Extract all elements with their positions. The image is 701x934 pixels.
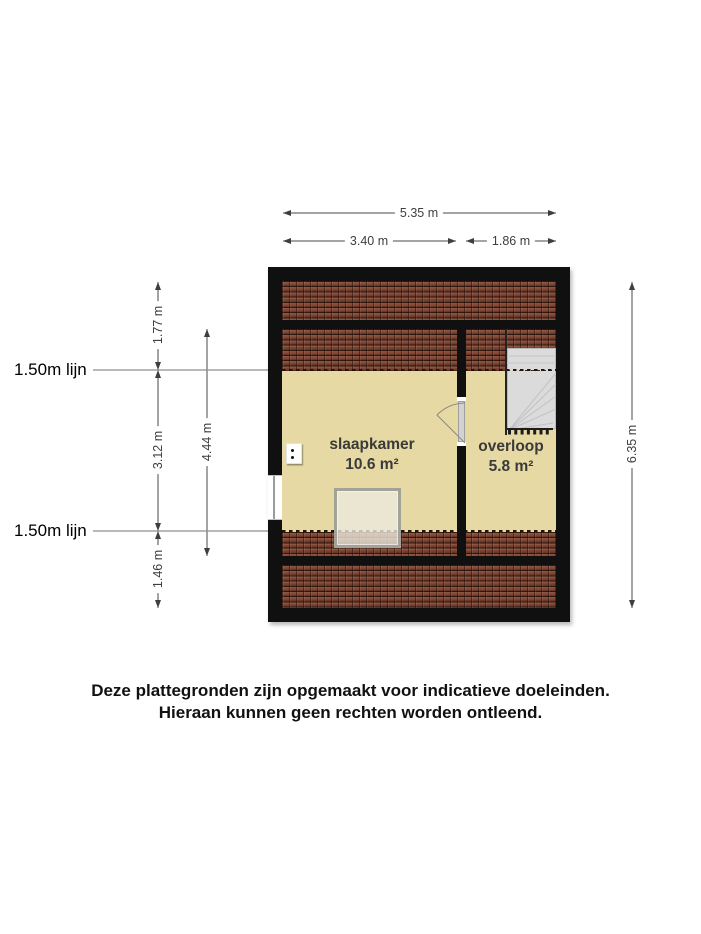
room-area: 5.8 m² <box>478 457 543 477</box>
knee-wall-dashed-line-top <box>282 369 556 371</box>
roof-tile-band-top <box>282 281 556 320</box>
height-line-label-top: 1.50m lijn <box>14 360 87 380</box>
height-line-label-bottom: 1.50m lijn <box>14 521 87 541</box>
dim-label-overall-width: 5.35 m <box>395 206 443 220</box>
disclaimer-line-2: Hieraan kunnen geen rechten worden ontle… <box>0 702 701 724</box>
roof-tile-band-bottom <box>282 565 556 608</box>
room-name: overloop <box>478 437 543 457</box>
floorplan-page: 5.35 m 3.40 m 1.86 m 1.77 m 3.12 m 1.46 … <box>0 0 701 934</box>
dim-label-slaapkamer-width: 3.40 m <box>345 234 393 248</box>
interior-wall-top <box>282 320 556 329</box>
disclaimer-text: Deze plattegronden zijn opgemaakt voor i… <box>0 680 701 724</box>
room-label-overloop: overloop 5.8 m² <box>478 437 543 477</box>
stairwell-wall <box>505 329 507 435</box>
window-icon <box>268 475 282 520</box>
room-area: 10.6 m² <box>329 455 414 475</box>
interior-wall-bottom <box>282 556 556 565</box>
disclaimer-line-1: Deze plattegronden zijn opgemaakt voor i… <box>0 680 701 702</box>
room-name: slaapkamer <box>329 435 414 455</box>
door-swing-arc <box>426 395 468 447</box>
roof-slope-lower <box>282 532 556 556</box>
dim-label-depth-middle: 3.12 m <box>151 426 165 474</box>
room-label-slaapkamer: slaapkamer 10.6 m² <box>329 435 414 475</box>
knee-wall-dashed-line-bottom <box>282 530 556 532</box>
dim-label-overall-depth: 6.35 m <box>625 420 639 468</box>
dim-label-inner-depth: 4.44 m <box>200 418 214 466</box>
dim-label-depth-bottom: 1.46 m <box>151 545 165 593</box>
floorplan-drawing: slaapkamer 10.6 m² overloop 5.8 m² <box>268 267 570 622</box>
room-divider-wall-upper <box>457 329 466 397</box>
dim-label-overloop-width: 1.86 m <box>487 234 535 248</box>
room-divider-wall-lower <box>457 446 466 565</box>
roof-window-icon <box>334 488 401 548</box>
height-reference-lines <box>93 370 268 531</box>
stairs-icon <box>507 348 556 435</box>
dim-label-depth-top: 1.77 m <box>151 301 165 349</box>
power-socket-icon <box>286 443 302 464</box>
